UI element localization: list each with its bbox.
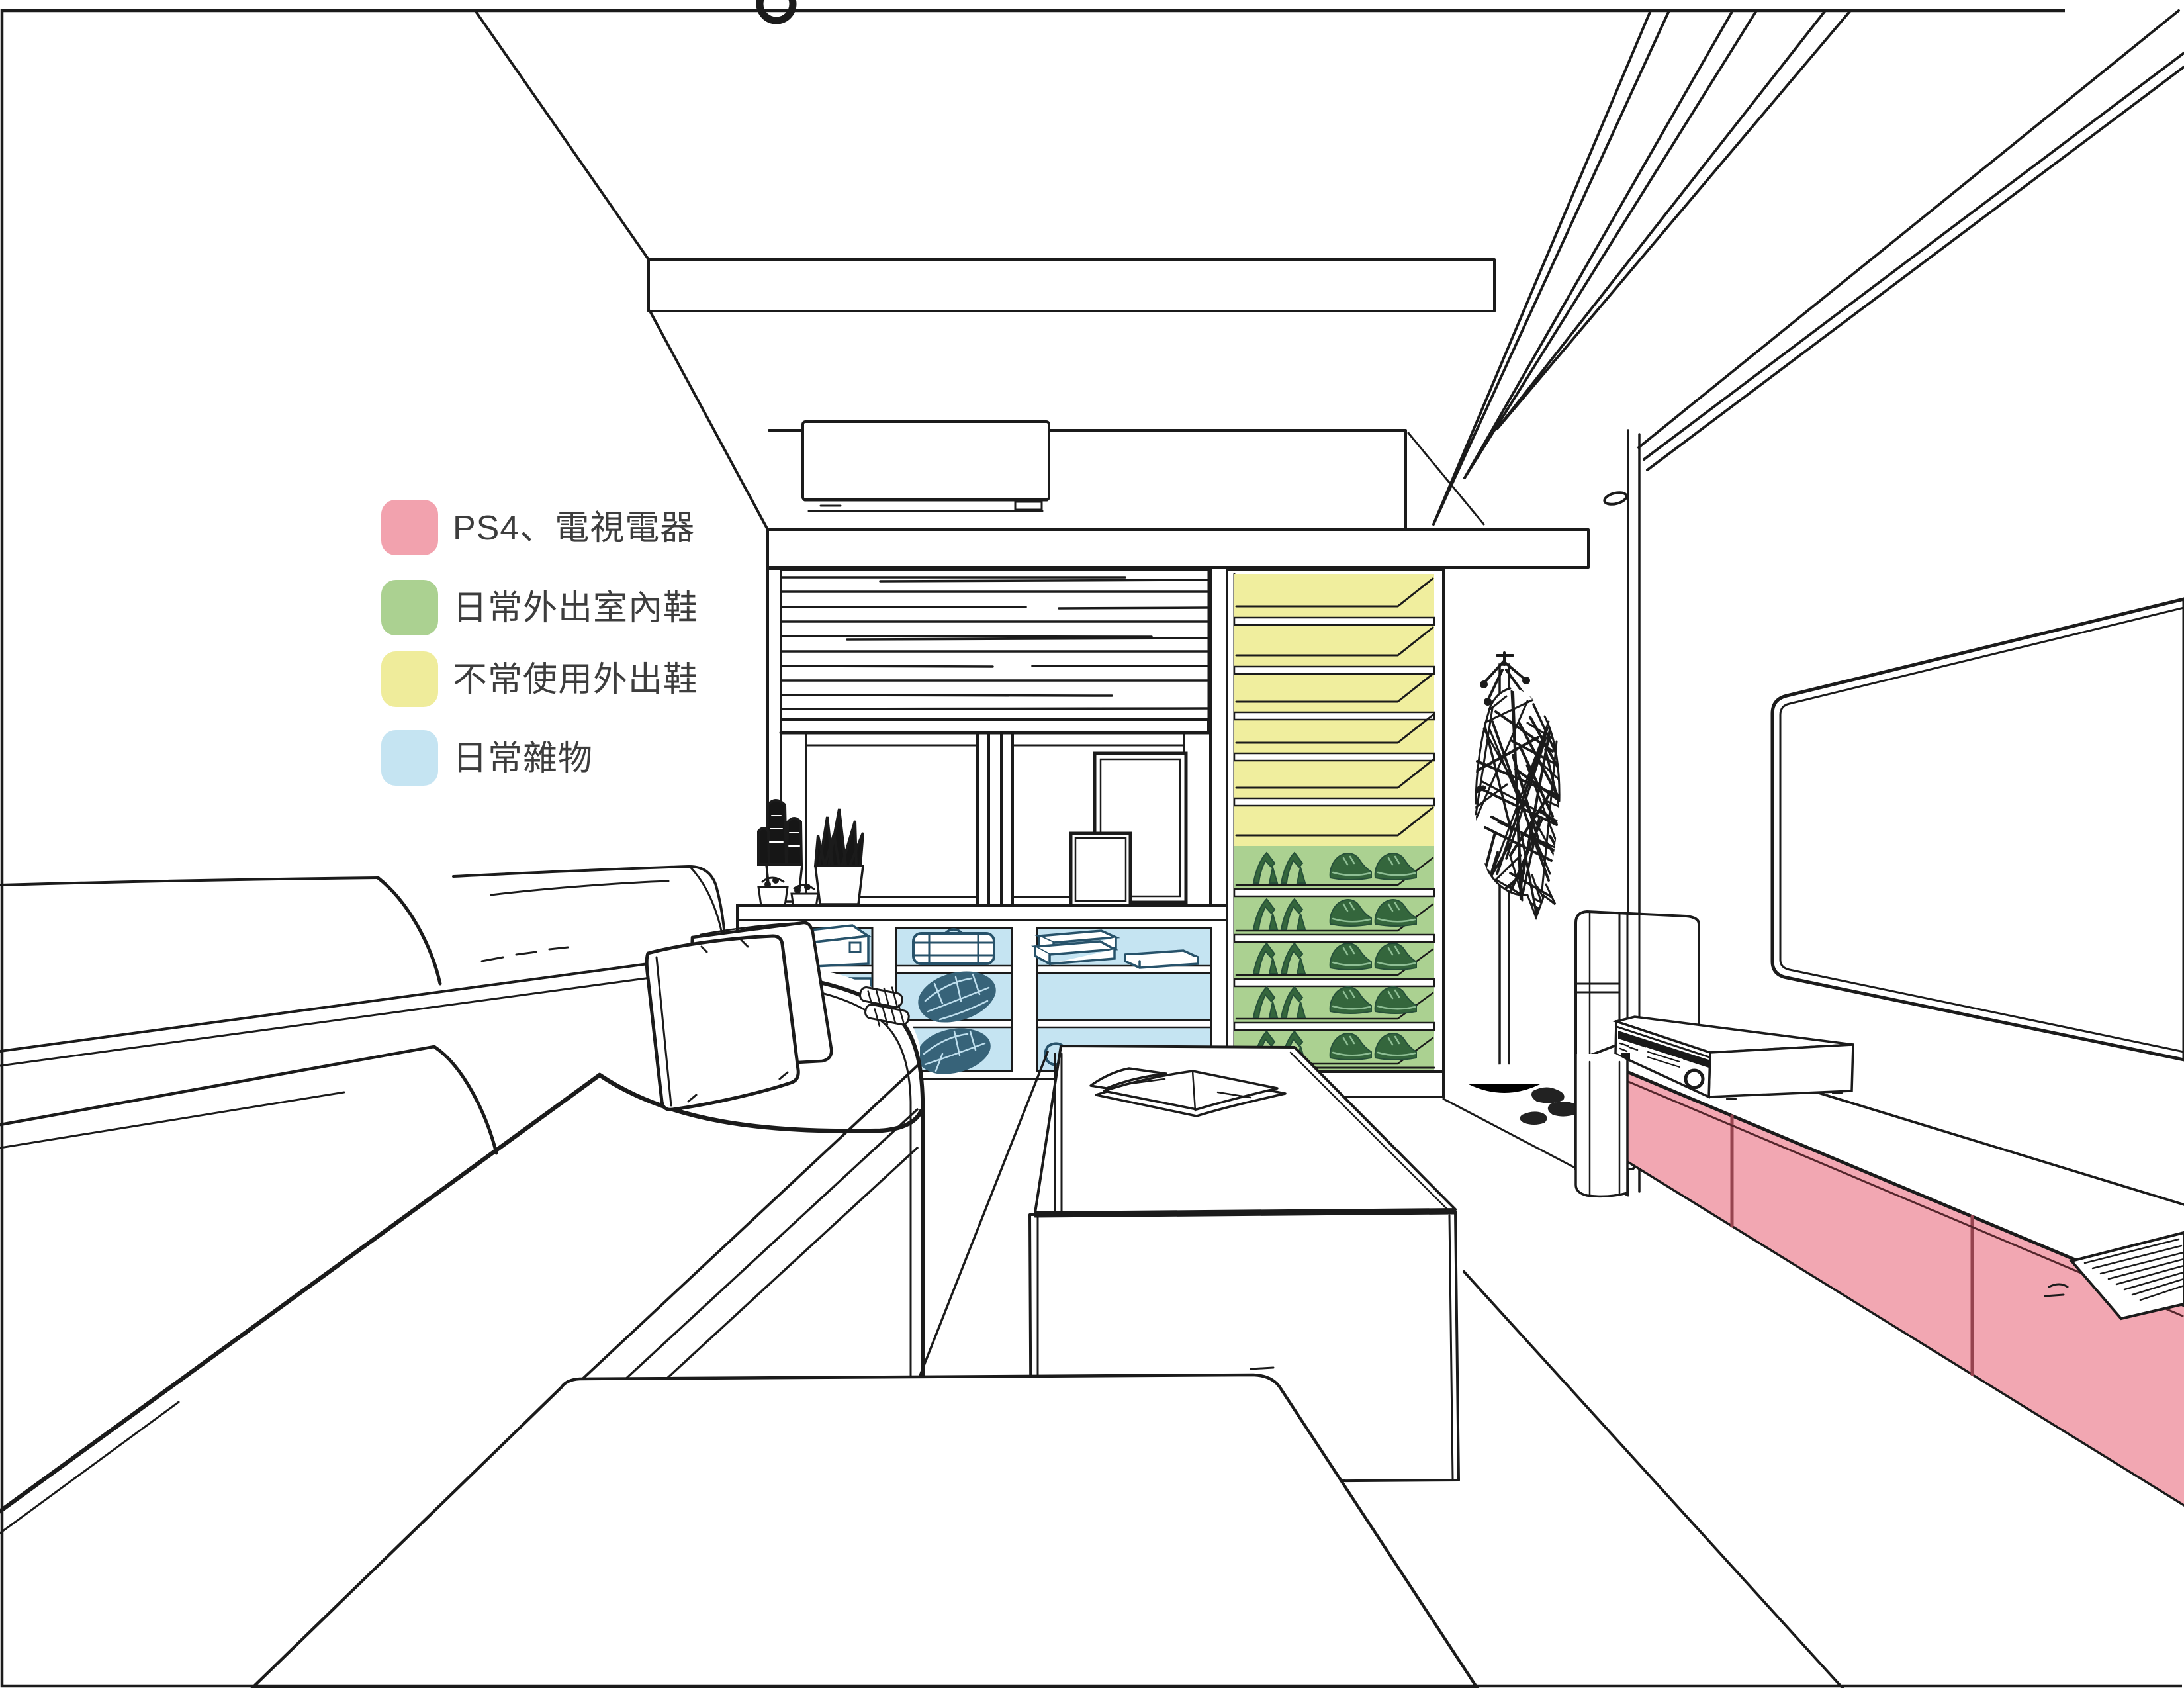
svg-text:PS4、電視電器: PS4、電視電器 — [453, 509, 695, 547]
svg-text:日常外出室內鞋: 日常外出室內鞋 — [453, 589, 698, 628]
svg-text:不常使用外出鞋: 不常使用外出鞋 — [453, 661, 698, 699]
svg-text:日常雜物: 日常雜物 — [453, 739, 593, 778]
